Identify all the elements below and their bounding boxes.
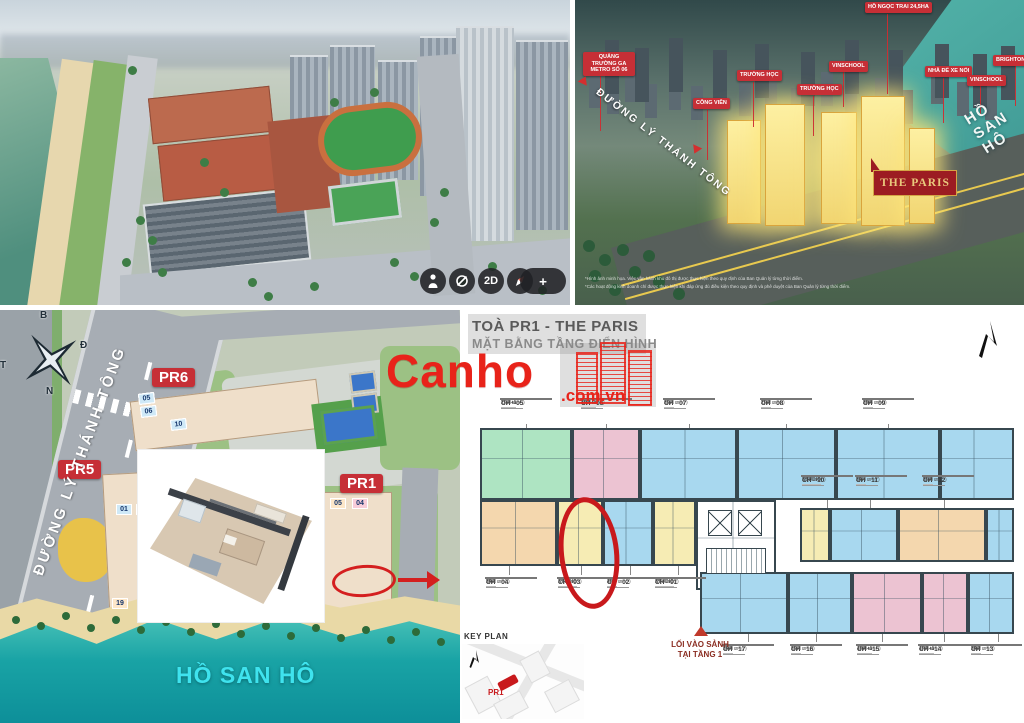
label-line bbox=[882, 634, 883, 642]
label-line bbox=[748, 634, 749, 642]
compass-w: T bbox=[0, 360, 6, 371]
lobby-note: LỐI VÀO SẢNH TẠI TẦNG 1 bbox=[658, 640, 742, 660]
zoom-in-button[interactable]: + bbox=[539, 274, 547, 289]
unit-label-ch11: CH - 112PN54,4 m² (*) bbox=[855, 475, 907, 477]
hide-labels-icon bbox=[455, 274, 469, 288]
pin-line bbox=[843, 72, 844, 107]
unit-room-ch01 bbox=[653, 500, 696, 566]
tennis-court bbox=[320, 405, 378, 445]
unit-room-ch09 bbox=[836, 428, 940, 500]
elevator-shaft bbox=[738, 510, 762, 536]
unit-label-ch08: CH - 082PN76,2 m² (*) bbox=[760, 398, 812, 400]
unit-room-ch07 bbox=[640, 428, 737, 500]
highlight-arrow bbox=[398, 578, 428, 582]
label-line bbox=[678, 566, 679, 575]
label-line bbox=[944, 634, 945, 642]
key-plan-title: KEY PLAN bbox=[464, 632, 508, 641]
label-pin: BRIGHTON COLLEGE bbox=[993, 55, 1024, 66]
unit-label-ch05: CH - 052PN+176,8 m² (*) bbox=[500, 398, 552, 400]
unit-label-ch09: CH - 092PN83,6 m² (*) bbox=[862, 398, 914, 400]
label-pin: HỒ NGỌC TRAI 24,5HA bbox=[865, 2, 932, 13]
unit-label-ch04: CH - 042PN54,2 m² (*) bbox=[485, 577, 537, 579]
pin-line bbox=[707, 110, 708, 160]
lobby-arrow bbox=[694, 626, 708, 636]
label-line bbox=[827, 500, 828, 508]
unit-room-ch14 bbox=[922, 572, 968, 634]
unit-room-ch12 bbox=[898, 508, 986, 562]
unit-room-ch16 bbox=[788, 572, 852, 634]
floorplan-title: TOÀ PR1 - THE PARIS bbox=[472, 318, 638, 335]
building-label-pr6: PR6 bbox=[152, 368, 195, 387]
label-line bbox=[944, 500, 945, 508]
label-line bbox=[689, 424, 690, 428]
unit-label-ch12: CH - 122PN55,0 m² (*) bbox=[922, 475, 974, 477]
hide-labels-button[interactable] bbox=[449, 268, 475, 294]
mode-2d-button[interactable]: 2D bbox=[478, 268, 504, 294]
unit-label-ch16: CH - 162PN61,1 m² (*) bbox=[790, 644, 842, 646]
unit-number: 04 bbox=[352, 498, 368, 509]
label-line bbox=[870, 500, 871, 508]
compass-rose bbox=[16, 322, 86, 396]
label-pin: TRƯỜNG HỌC bbox=[737, 70, 782, 81]
disclaimer-line: *Các hoạt động kinh doanh chỉ được thực … bbox=[585, 284, 1017, 290]
label-pin: NHÀ ĐỂ XE NỔI bbox=[925, 66, 972, 77]
unit-label-ch01: CH - 01STUDIO27,4 m² (*) bbox=[654, 577, 706, 579]
watermark-brand: Canho bbox=[386, 344, 534, 398]
tower-block bbox=[516, 40, 568, 230]
label-pin: QUẢNG TRƯỜNG GA METRO SỐ 06 bbox=[583, 52, 635, 76]
masterplan-render-panel: QUẢNG TRƯỜNG GA METRO SỐ 06 TRƯỜNG HỌC C… bbox=[575, 0, 1024, 305]
label-line bbox=[606, 424, 607, 428]
key-plan-compass-icon bbox=[468, 650, 482, 668]
unit-room-ch05 bbox=[480, 428, 572, 500]
pin-line bbox=[813, 96, 814, 136]
unit-room-ch06 bbox=[572, 428, 640, 500]
pin-line bbox=[887, 14, 888, 94]
project-label: THE PARIS bbox=[873, 170, 957, 196]
unit-room-ch13 bbox=[968, 572, 1014, 634]
north-arrow-icon bbox=[974, 320, 1004, 360]
label-pin: TRƯỜNG HỌC bbox=[797, 84, 842, 95]
zoom-control[interactable]: − + bbox=[520, 268, 566, 294]
label-line bbox=[630, 566, 631, 575]
tennis-court bbox=[349, 370, 377, 393]
label-pin: CÔNG VIÊN bbox=[693, 98, 730, 109]
label-pin: VINSCHOOL bbox=[967, 75, 1006, 86]
palm-trees bbox=[12, 616, 20, 624]
unit-label-ch14: CH - 141PN+147,5 m² (*) bbox=[918, 644, 970, 646]
unit-room-ch11 bbox=[830, 508, 898, 562]
unit-room bbox=[940, 428, 1014, 500]
lake-label: HỒ SAN HÔ bbox=[176, 662, 315, 689]
compass-e: Đ bbox=[80, 340, 87, 351]
unit-label-ch07: CH - 072PN61,1 m² (*) bbox=[663, 398, 715, 400]
unit-label-ch10: CH - 10STUDIO28,8 m² (*) bbox=[801, 475, 853, 477]
label-line bbox=[509, 566, 510, 575]
unit-room-ch15 bbox=[852, 572, 922, 634]
watermark-brand-suffix: .com.vn bbox=[561, 386, 625, 406]
floorplan-panel: TOÀ PR1 - THE PARIS MẶT BẰNG TẦNG ĐIỂN H… bbox=[460, 310, 1024, 723]
unit-number: 19 bbox=[112, 598, 128, 609]
pegman-icon bbox=[427, 274, 439, 288]
pin-line bbox=[943, 78, 944, 123]
real-estate-collage: 2D − + QUẢNG TRƯỜNG G bbox=[0, 0, 1024, 723]
compass-s: N bbox=[46, 386, 53, 397]
unit-room-ch04 bbox=[480, 500, 557, 566]
key-plan-map: PR1 bbox=[462, 644, 584, 719]
unit-number: 05 bbox=[138, 392, 155, 405]
label-line bbox=[888, 424, 889, 428]
glowing-tower bbox=[821, 112, 857, 224]
label-line bbox=[998, 634, 999, 642]
unit-number: 05 bbox=[330, 498, 346, 509]
pin-line bbox=[600, 76, 601, 131]
unit-number: 06 bbox=[140, 405, 157, 418]
unit-room bbox=[986, 508, 1014, 562]
unit-room-ch08 bbox=[737, 428, 836, 500]
aerial-photo-panel: 2D − + bbox=[0, 0, 570, 305]
unit-number: 10 bbox=[170, 418, 187, 431]
pegman-button[interactable] bbox=[420, 268, 446, 294]
unit-room-ch17 bbox=[700, 572, 788, 634]
trees bbox=[128, 66, 137, 75]
mode-2d-label: 2D bbox=[484, 275, 498, 287]
glowing-tower bbox=[765, 104, 805, 226]
glowing-tower bbox=[727, 120, 761, 224]
unit-label-ch13: CH - 132PN54,2 m² (*) bbox=[970, 644, 1022, 646]
unit-label-ch15: CH - 151PN+148,0 m² (*) bbox=[856, 644, 908, 646]
key-plan-pr1-label: PR1 bbox=[488, 688, 504, 697]
trees bbox=[583, 240, 595, 252]
watermark-building-sketch bbox=[628, 350, 652, 406]
unit-number: 01 bbox=[116, 504, 132, 515]
elevator-shaft bbox=[708, 510, 732, 536]
building-label-pr1: PR1 bbox=[340, 474, 383, 493]
label-line bbox=[526, 424, 527, 428]
unit-room-ch10 bbox=[800, 508, 830, 562]
road-arrow bbox=[690, 144, 702, 155]
label-pin: VINSCHOOL bbox=[829, 61, 868, 72]
compass-n: B bbox=[40, 310, 47, 321]
label-line bbox=[816, 634, 817, 642]
label-line bbox=[786, 424, 787, 428]
sports-field bbox=[328, 178, 402, 226]
highlight-arrowhead bbox=[427, 571, 440, 589]
stair-core bbox=[706, 548, 766, 574]
apartment-3d-inset bbox=[138, 450, 324, 622]
glowing-tower bbox=[861, 96, 905, 226]
disclaimer-line: *Hình ảnh minh họa. Việc vận hành khu đô… bbox=[585, 276, 1017, 282]
pin-line bbox=[753, 82, 754, 127]
